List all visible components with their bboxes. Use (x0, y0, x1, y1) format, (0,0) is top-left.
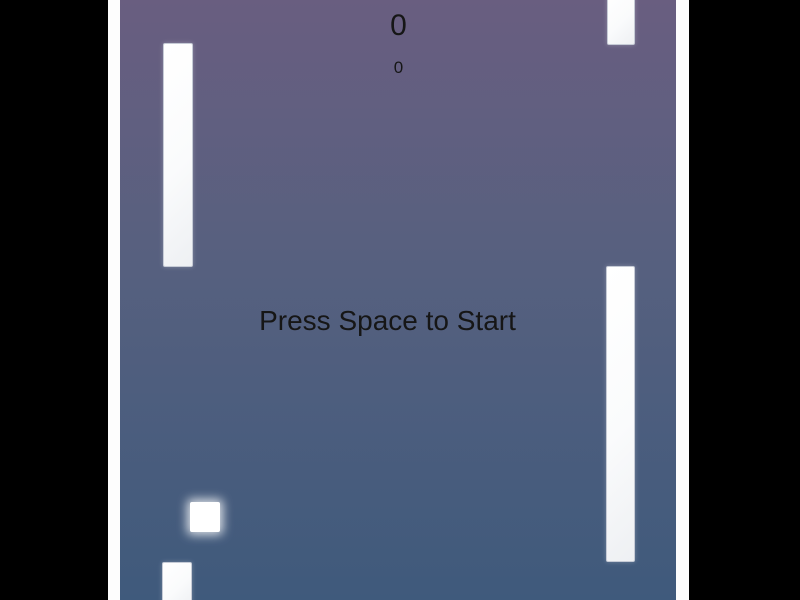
pipe-left-top (163, 43, 193, 267)
start-prompt-text: Press Space to Start (108, 307, 678, 335)
pipe-left-bottom (162, 562, 192, 600)
letterbox-right (689, 0, 800, 600)
score-primary: 0 (108, 11, 689, 41)
game-window: { "window": { "width": 800, "height": 60… (0, 0, 800, 600)
letterbox-left (0, 0, 108, 600)
wall-left (108, 0, 120, 600)
score-secondary: 0 (108, 59, 689, 76)
game-canvas[interactable]: 0 0 Press Space to Start (108, 0, 689, 600)
player-square (190, 502, 220, 532)
wall-right (676, 0, 689, 600)
